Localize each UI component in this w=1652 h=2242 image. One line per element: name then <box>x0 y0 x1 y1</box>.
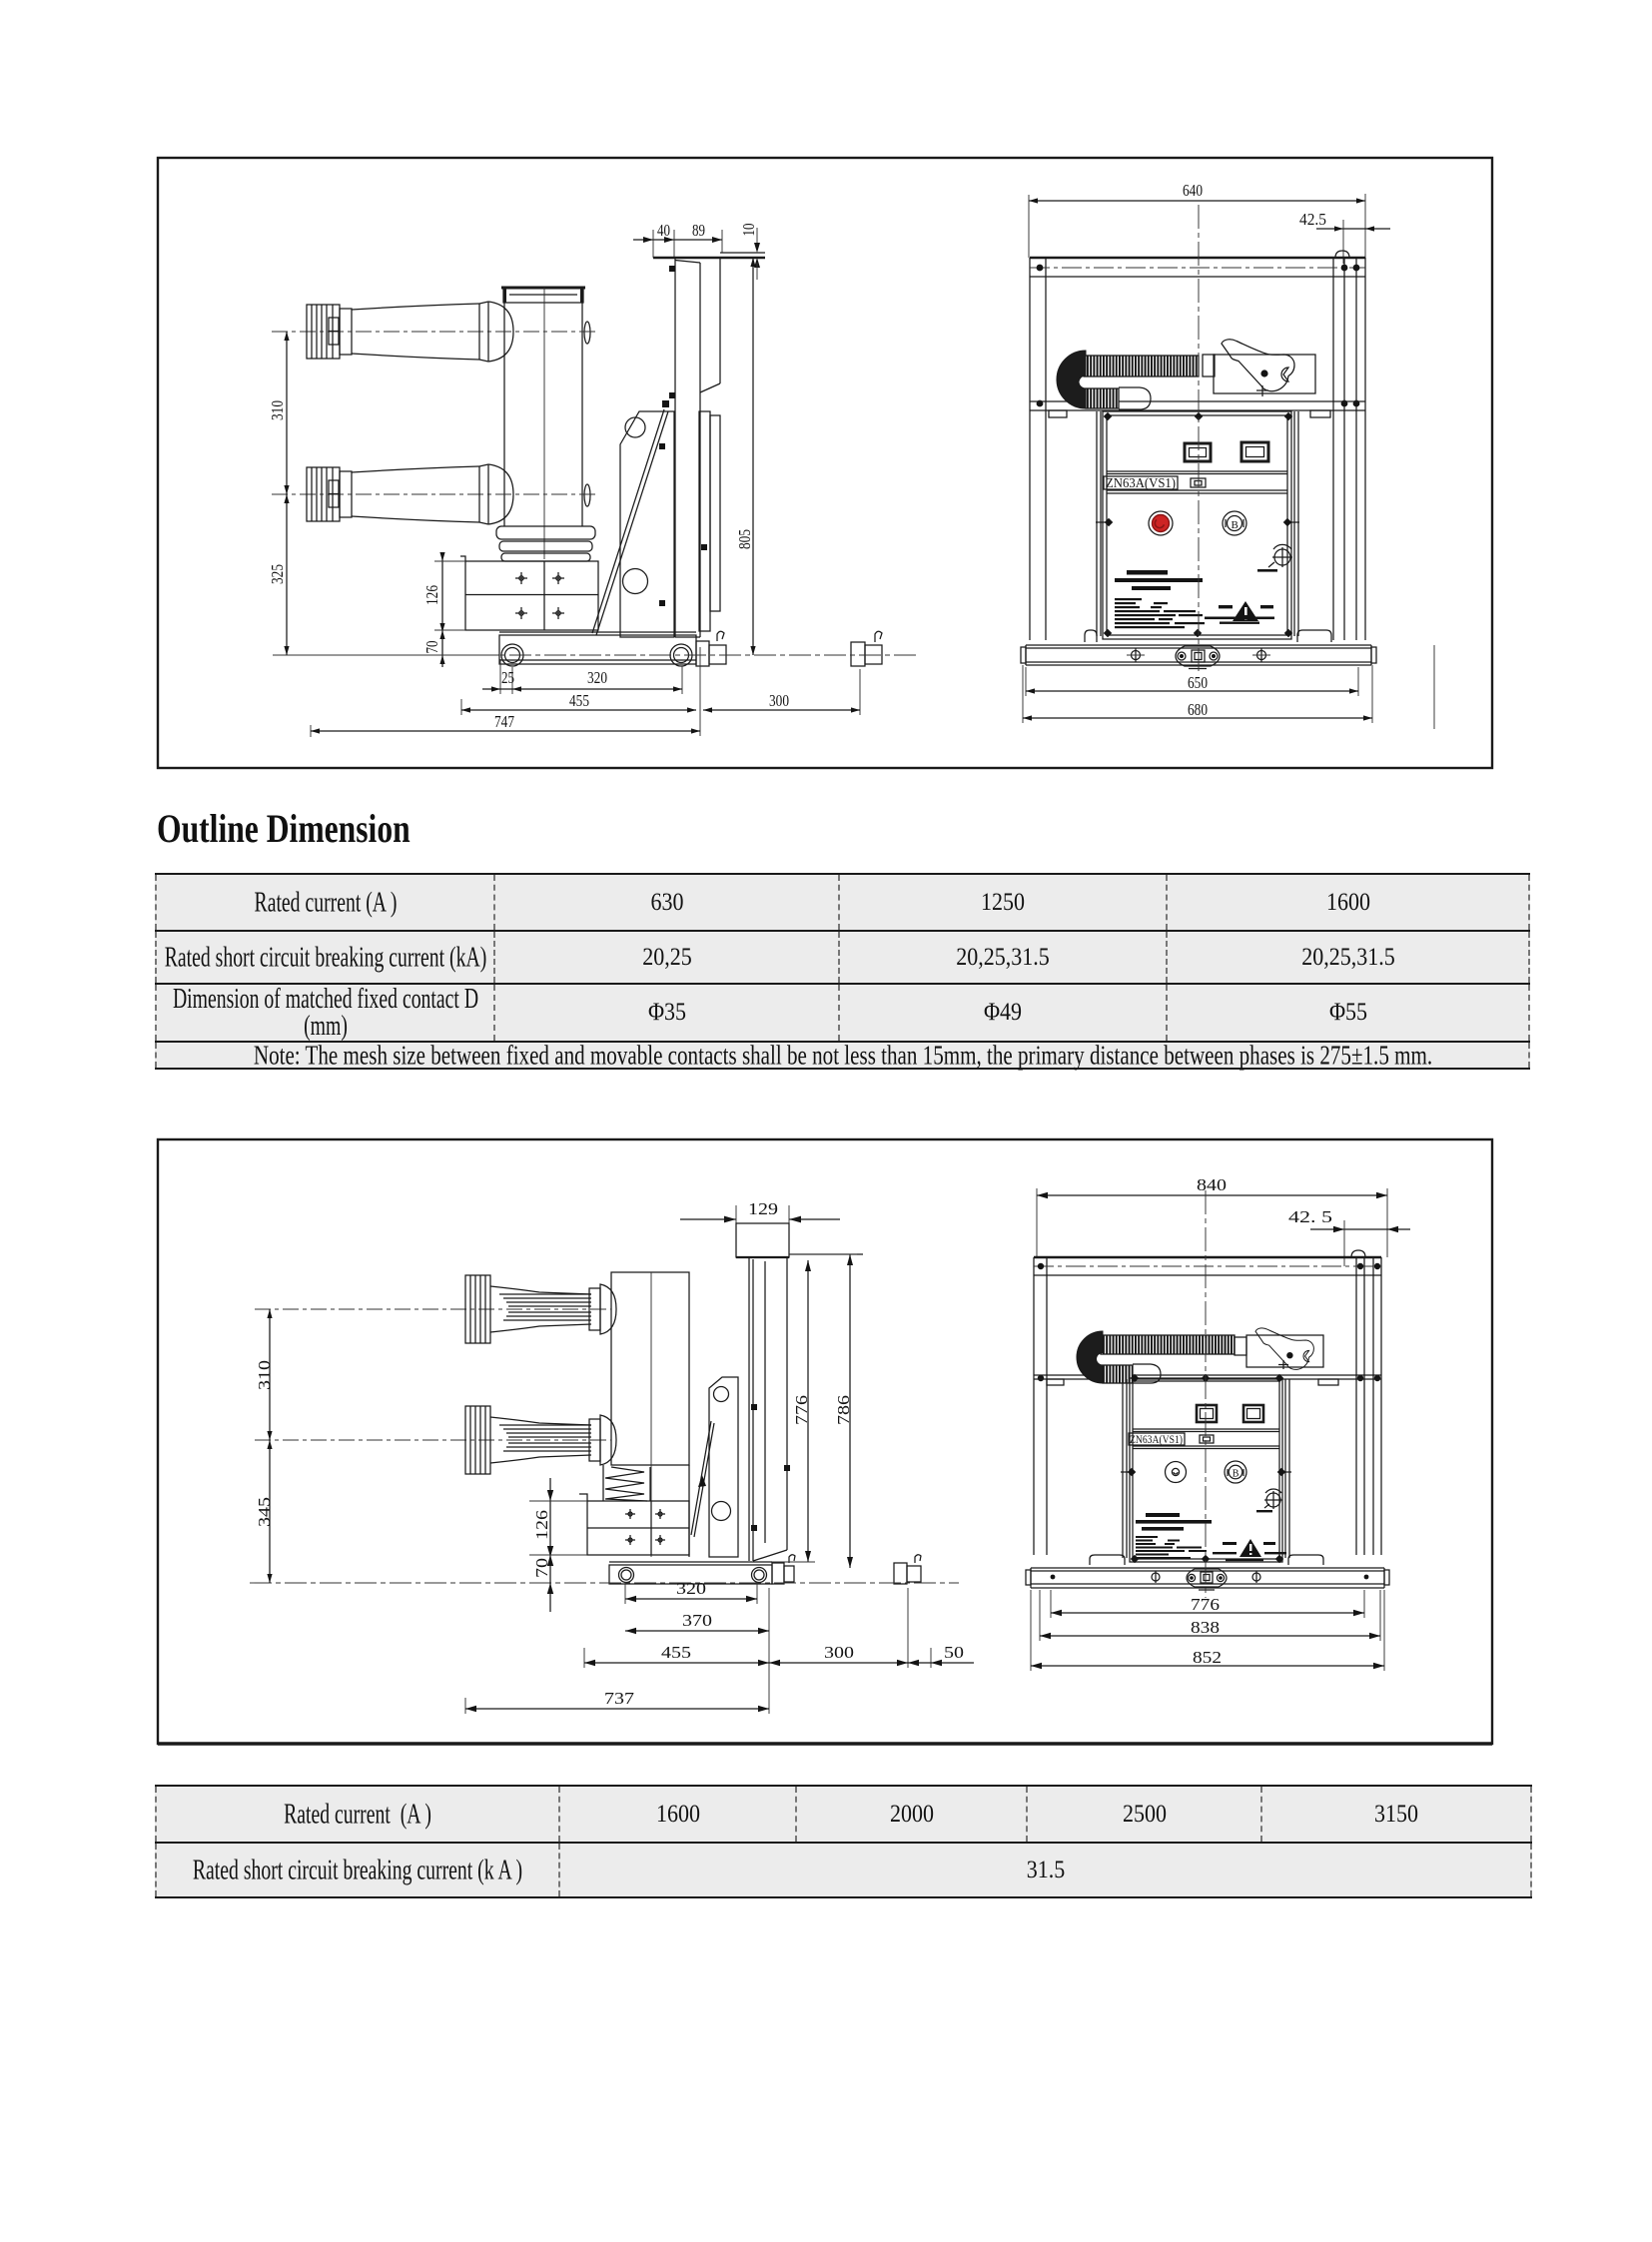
svg-text:50: 50 <box>944 1643 964 1662</box>
svg-text:325: 325 <box>268 564 287 584</box>
svg-text:320: 320 <box>676 1579 706 1598</box>
svg-text:776: 776 <box>792 1395 811 1425</box>
svg-text:300: 300 <box>769 691 789 710</box>
svg-text:70: 70 <box>532 1558 551 1578</box>
svg-text:840: 840 <box>1197 1175 1227 1194</box>
svg-text:455: 455 <box>569 691 589 710</box>
svg-text:310: 310 <box>255 1360 274 1390</box>
svg-text:370: 370 <box>682 1611 712 1630</box>
svg-text:ZN63A(VS1): ZN63A(VS1) <box>1130 1434 1183 1446</box>
svg-text:786: 786 <box>834 1395 853 1425</box>
svg-text:640: 640 <box>1183 181 1203 200</box>
svg-text:129: 129 <box>748 1199 778 1218</box>
svg-text:852: 852 <box>1193 1648 1222 1667</box>
svg-text:805: 805 <box>735 529 754 549</box>
svg-text:10: 10 <box>739 224 758 237</box>
svg-text:300: 300 <box>824 1643 854 1662</box>
svg-text:747: 747 <box>494 712 514 731</box>
svg-text:776: 776 <box>1191 1595 1220 1614</box>
svg-text:345: 345 <box>255 1497 274 1527</box>
svg-text:B: B <box>1232 519 1239 531</box>
svg-text:70: 70 <box>422 641 441 654</box>
svg-text:126: 126 <box>422 585 441 605</box>
svg-text:310: 310 <box>268 400 287 420</box>
svg-text:40: 40 <box>657 221 670 240</box>
svg-text:ZN63A(VS1): ZN63A(VS1) <box>1106 476 1176 491</box>
svg-text:320: 320 <box>587 668 607 687</box>
svg-text:25: 25 <box>501 668 514 687</box>
svg-text:680: 680 <box>1188 700 1208 719</box>
svg-text:455: 455 <box>661 1643 691 1662</box>
svg-text:42. 5: 42. 5 <box>1288 1207 1332 1226</box>
svg-text:89: 89 <box>692 221 705 240</box>
svg-text:650: 650 <box>1188 673 1208 692</box>
svg-text:42.5: 42.5 <box>1299 210 1326 229</box>
svg-text:838: 838 <box>1191 1618 1220 1637</box>
svg-text:126: 126 <box>532 1510 551 1540</box>
svg-text:737: 737 <box>604 1689 634 1708</box>
svg-text:B: B <box>1233 1469 1239 1480</box>
